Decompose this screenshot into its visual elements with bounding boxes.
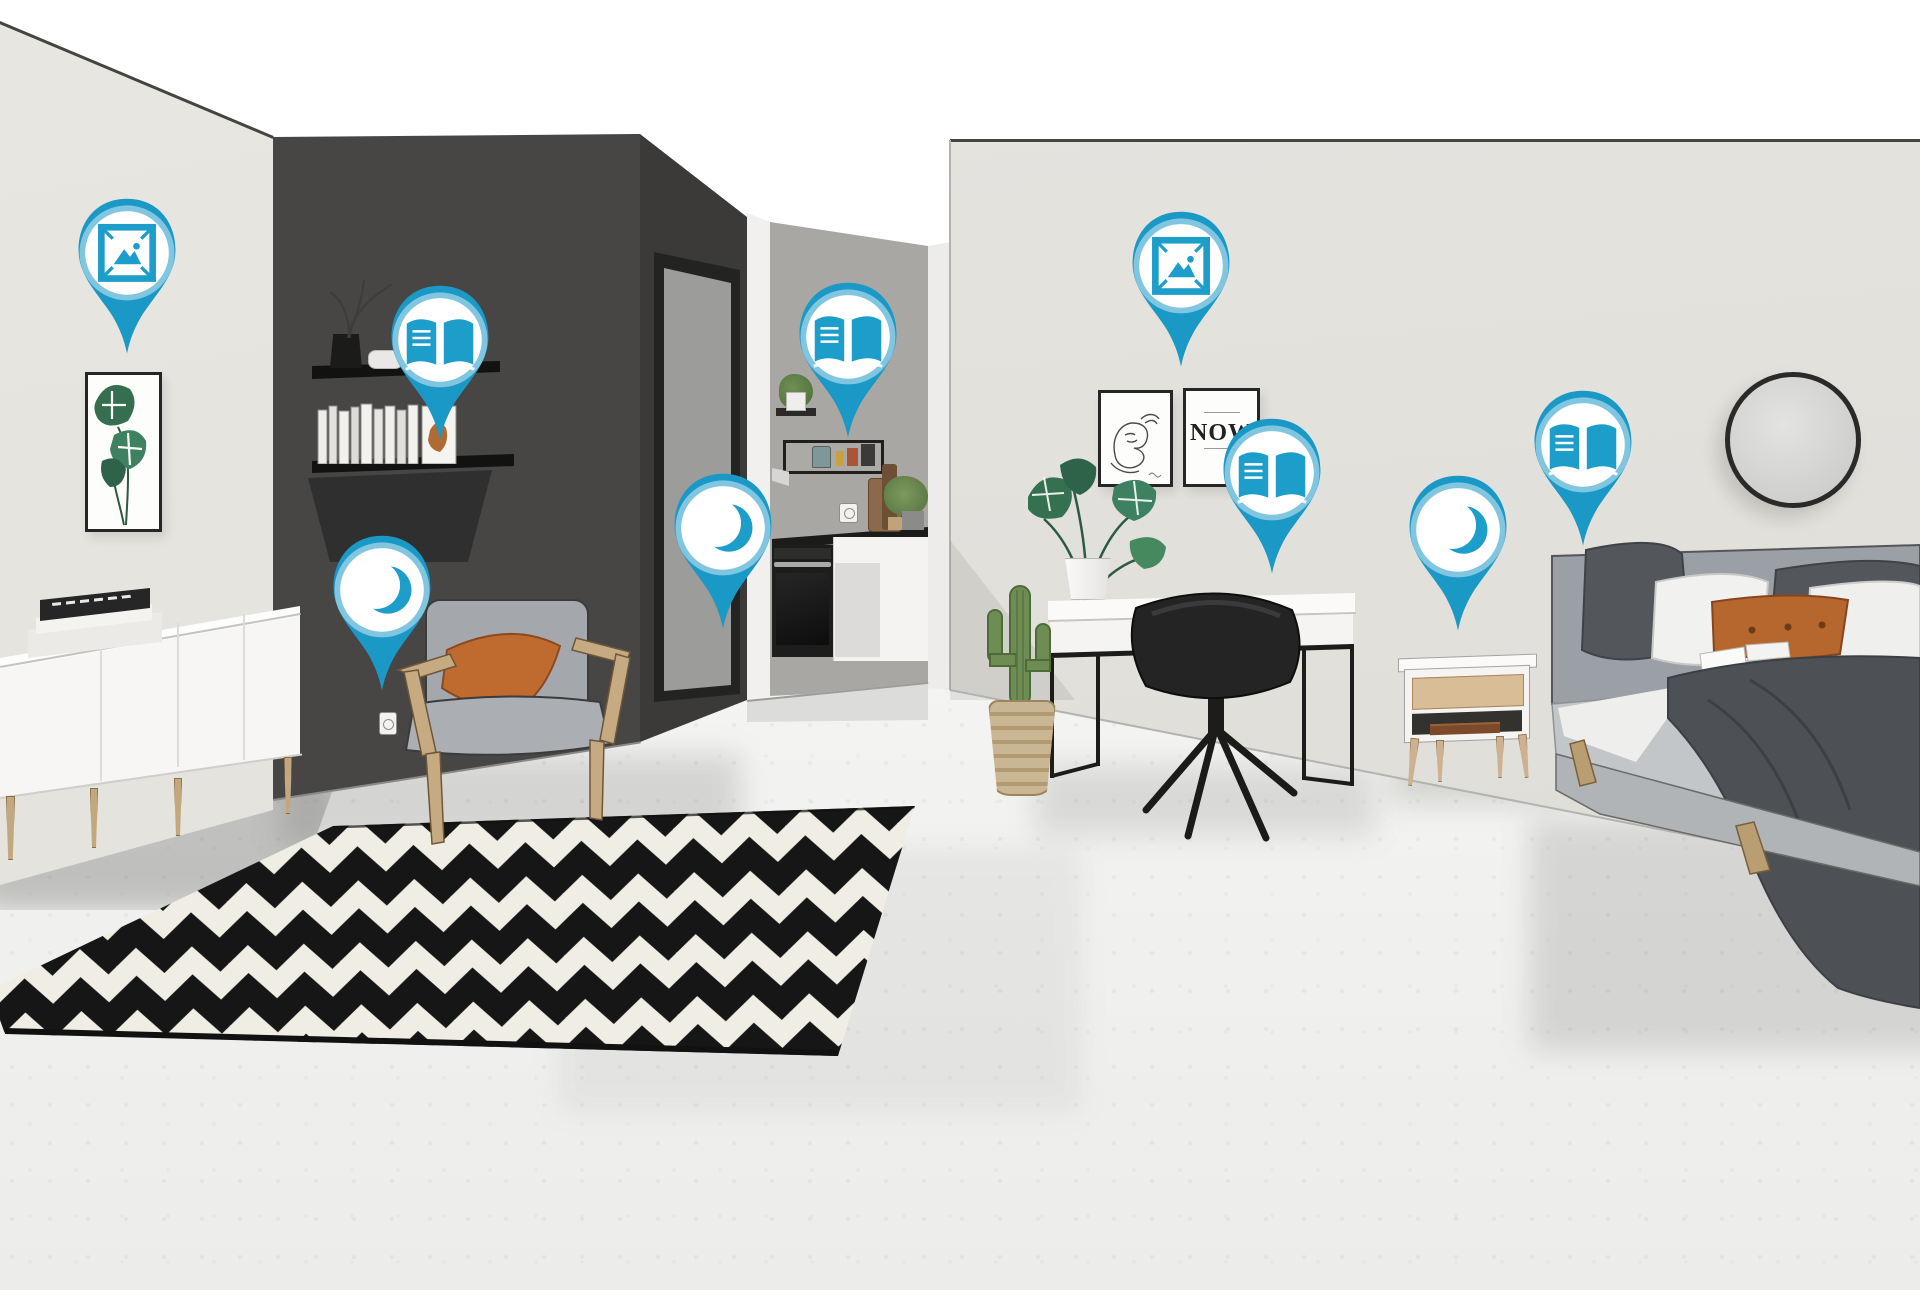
hotspot-moon-nightstand[interactable]	[1401, 471, 1515, 642]
hotspot-picture-frame-living-room-wall-art[interactable]	[70, 194, 184, 365]
hotspot-open-book-wall-shelf-books[interactable]	[383, 281, 497, 452]
hotspot-picture-frame-bedroom-wall-art[interactable]	[1124, 207, 1238, 378]
apartment-scene: NOW	[0, 0, 1920, 1290]
hotspot-open-book-desk-area[interactable]	[1215, 414, 1329, 585]
hotspot-moon-hallway-doorway[interactable]	[666, 469, 780, 640]
hotspot-open-book-bed[interactable]	[1526, 386, 1640, 557]
hotspot-moon-armchair-corner[interactable]	[325, 531, 439, 702]
hotspot-open-book-kitchen-shelves[interactable]	[791, 278, 905, 449]
hotspot-pins-layer	[0, 0, 1920, 1290]
